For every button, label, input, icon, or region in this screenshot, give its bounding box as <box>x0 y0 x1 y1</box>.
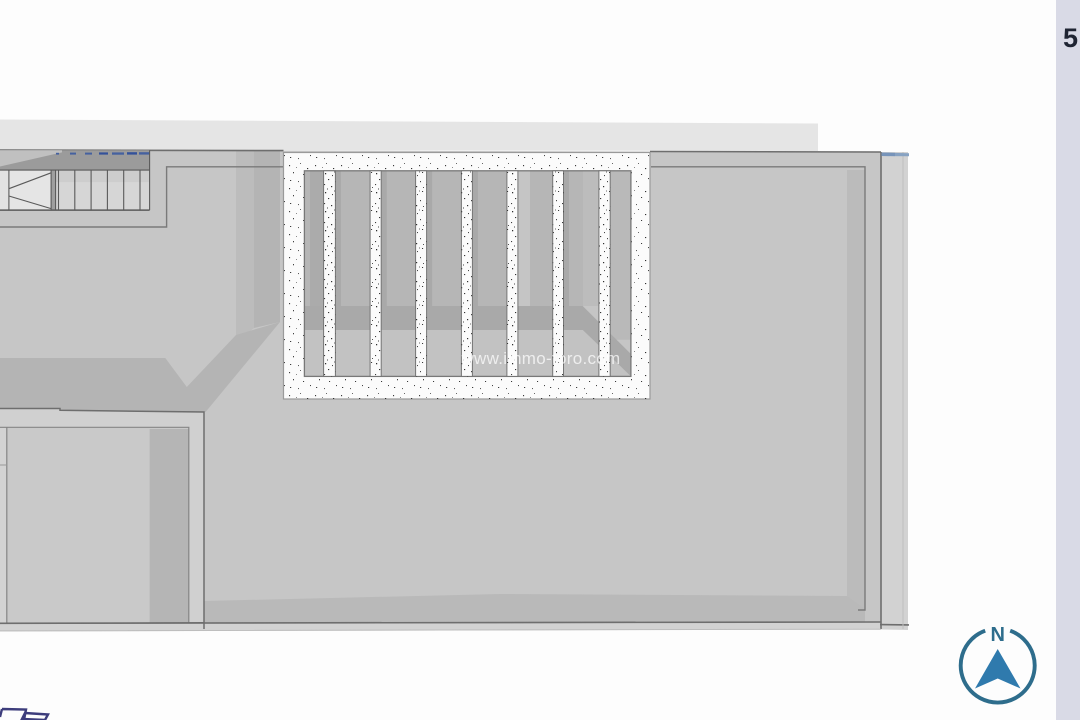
svg-text:www.immo-toro.com: www.immo-toro.com <box>460 349 620 368</box>
svg-text:N: N <box>990 624 1004 646</box>
svg-text:5: 5 <box>1063 23 1078 53</box>
